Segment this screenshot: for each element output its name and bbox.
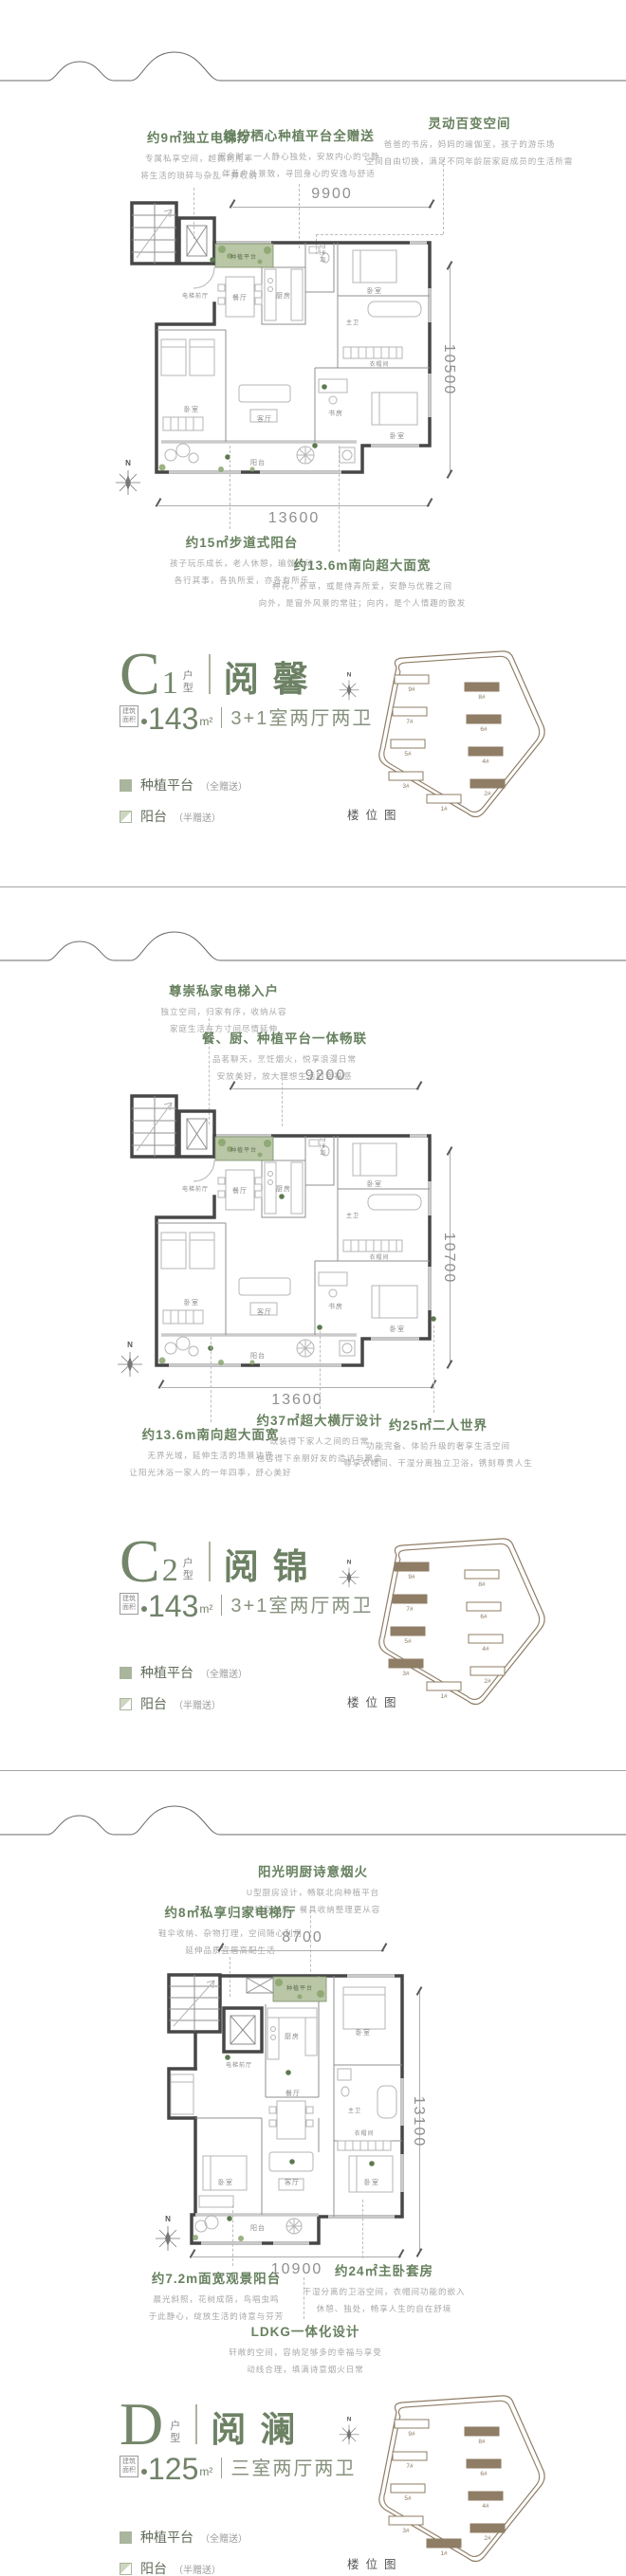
unit-title: C2 户型 阅锦 bbox=[120, 1540, 322, 1583]
compass-icon: N bbox=[114, 457, 142, 497]
callout-line: 晨光斜照，花树成荫，鸟唱虫鸣 bbox=[149, 2293, 285, 2305]
unit-name: 阅锦 bbox=[224, 1552, 322, 1583]
dimension-right: 10700 bbox=[444, 1151, 469, 1364]
unit-letter: D bbox=[120, 2402, 163, 2446]
callout-title: 阳光明厨诗意烟火 bbox=[246, 1861, 381, 1880]
svg-text:7#: 7# bbox=[406, 2463, 414, 2470]
svg-text:7#: 7# bbox=[406, 1606, 414, 1613]
svg-text:2#: 2# bbox=[484, 1678, 491, 1685]
callout-line: 休憩、独处，畅享人生的自在舒境 bbox=[303, 2303, 465, 2314]
svg-text:1#: 1# bbox=[440, 806, 448, 813]
room-label-balcony: 阳台 bbox=[250, 1351, 266, 1360]
unit-layout: 3+1室两厅两卫 bbox=[230, 1598, 373, 1616]
room-label-dining: 餐厅 bbox=[285, 2089, 301, 2097]
compass-icon: N bbox=[338, 2414, 360, 2446]
legend-row-planting: 种植平台 （全赠送） bbox=[120, 2530, 248, 2545]
callout-ldkg: LDKG一体化设计 轩敞的空间，容纳足够多的幸福与享受 动线合理，填满诗意烟火日… bbox=[229, 2321, 382, 2381]
room-label-closet: 衣帽间 bbox=[369, 360, 389, 368]
planting-swatch-icon bbox=[120, 779, 132, 792]
siteplan-map: 9# 7# 5# 3# 1# 8# 6# 4# 2# bbox=[368, 1538, 548, 1710]
svg-text:5#: 5# bbox=[404, 1638, 412, 1645]
room-label-bath: 卫生间 bbox=[319, 243, 326, 263]
dimension-top: 9200 bbox=[232, 1066, 419, 1090]
room-label-master-bath: 主卫 bbox=[346, 319, 359, 326]
room-label-bedroom: 卧室 bbox=[364, 2178, 379, 2186]
balcony-swatch-icon bbox=[120, 1698, 132, 1710]
area-value: 143 bbox=[148, 1595, 198, 1617]
callout-line: 独立空间，归家有序，收纳从容 bbox=[160, 1006, 286, 1017]
callout-title: 约15㎡步道式阳台 bbox=[170, 532, 314, 551]
unit-area: 建筑面积 125 m² 三室两厅两卫 bbox=[120, 2456, 356, 2480]
divider-bar bbox=[221, 707, 222, 728]
callout-line: 伴着户外景致，寻回身心的安逸与舒适 bbox=[217, 168, 379, 179]
room-label-master-bath: 主卫 bbox=[348, 2107, 361, 2114]
dimension-bottom: 13600 bbox=[158, 502, 430, 527]
svg-text:5#: 5# bbox=[404, 751, 412, 758]
svg-text:N: N bbox=[347, 2416, 352, 2422]
svg-text:2#: 2# bbox=[484, 791, 491, 797]
floorplan-c2: 电梯前厅 种植平台 餐厅 厨房 卫生间 卧室 主卫 衣帽间 卧室 客厅 书房 卧… bbox=[129, 1094, 434, 1371]
dimension-right: 10500 bbox=[444, 265, 469, 474]
unit-name: 阅馨 bbox=[224, 665, 322, 696]
area-box: 建筑面积 bbox=[120, 1593, 138, 1615]
floorplan-d: 种植平台 卧室 厨房 电梯前厅 餐厅 主卫 衣帽间 卧室 客厅 卧室 阳台 bbox=[167, 1974, 404, 2249]
callout-balcony: 约7.2m面宽观景阳台 晨光斜照，花树成荫，鸟唱虫鸣 于此静心，绽放生活的诗意与… bbox=[149, 2268, 285, 2328]
room-label-bedroom: 卧室 bbox=[390, 1325, 405, 1333]
siteplan-map: 9# 7# 5# 3# 1# 8# 6# 4# 2# bbox=[368, 2395, 548, 2567]
dimension-bottom: 13600 bbox=[161, 1384, 433, 1409]
legend: 种植平台 （全赠送） 阳台 （半赠送） bbox=[120, 1665, 248, 1727]
svg-text:8#: 8# bbox=[478, 694, 486, 701]
compass-icon: N bbox=[338, 1557, 360, 1589]
room-label-study: 书房 bbox=[328, 409, 343, 417]
dimension-value: 13600 bbox=[161, 1392, 433, 1409]
legend: 种植平台 （全赠送） 阳台 （半赠送） bbox=[120, 777, 248, 840]
wave-divider bbox=[0, 1803, 626, 1841]
callout-line: 向外，是窗外风景的常驻；向内，是个人情趣的散发 bbox=[259, 597, 467, 609]
svg-text:4#: 4# bbox=[482, 2503, 489, 2510]
legend-label: 种植平台 bbox=[140, 2528, 193, 2547]
leader-line bbox=[230, 446, 230, 529]
legend-note: （全赠送） bbox=[200, 1666, 248, 1680]
callout-title: 灵动百变空间 bbox=[366, 113, 574, 132]
room-label-elevator-hall: 电梯前厅 bbox=[182, 292, 209, 300]
dimension-value: 13600 bbox=[158, 510, 430, 527]
room-label-planting: 种植平台 bbox=[286, 1984, 313, 1992]
balcony-swatch-icon bbox=[120, 2563, 132, 2575]
divider-bar bbox=[195, 2404, 197, 2444]
svg-text:3#: 3# bbox=[402, 1671, 410, 1677]
callout-title: 约8㎡私享归家电梯厅 bbox=[158, 1902, 303, 1921]
callout-line: 功能完备、体验升级的奢享生活空间 bbox=[343, 1440, 533, 1452]
planting-swatch-icon bbox=[120, 2531, 132, 2544]
callout-master-suite: 约24㎡主卧套房 干湿分离的卫浴空间，衣帽间功能的嵌入 休憩、独处，畅享人生的自… bbox=[303, 2260, 465, 2320]
unit-title: D 户型 阅澜 bbox=[120, 2402, 309, 2446]
dimension-value: 8700 bbox=[221, 1929, 384, 1946]
callout-line: 闲余时，一人静心独处，安放内心的宁静 bbox=[217, 151, 379, 162]
callout-line: 种花、养草，或是侍弄所爱，安静与优雅之间 bbox=[259, 580, 467, 592]
legend-note: （半赠送） bbox=[174, 810, 221, 824]
divider-bar bbox=[221, 1595, 222, 1616]
svg-text:5#: 5# bbox=[404, 2495, 412, 2502]
area-box: 建筑面积 bbox=[120, 2456, 138, 2477]
unit-letter: C bbox=[120, 652, 160, 696]
svg-text:2#: 2# bbox=[484, 2535, 491, 2542]
svg-text:9#: 9# bbox=[408, 2431, 415, 2438]
callout-line: 品茗聊天，烹饪烟火，悦享浪漫日常 bbox=[202, 1053, 367, 1065]
leader-line bbox=[320, 1331, 321, 1409]
unit-type-label: 户型 bbox=[183, 670, 194, 697]
dimension-right: 13100 bbox=[414, 1991, 438, 2253]
svg-text:9#: 9# bbox=[408, 1574, 415, 1580]
siteplan-caption: 楼位图 bbox=[347, 1692, 403, 1710]
callout-title: 缤纷栖心种植平台全赠送 bbox=[217, 125, 379, 144]
siteplan-map: 9# 7# 5# 3# 1# 8# 6# 4# 2# bbox=[368, 650, 548, 823]
legend-row-balcony: 阳台 （半赠送） bbox=[120, 2561, 248, 2576]
leader-line bbox=[443, 159, 444, 234]
legend: 种植平台 （全赠送） 阳台 （半赠送） bbox=[120, 2530, 248, 2576]
svg-text:6#: 6# bbox=[480, 726, 488, 733]
callout-line: 干湿分离的卫浴空间，衣帽间功能的嵌入 bbox=[303, 2286, 465, 2297]
callout-title: 约7.2m面宽观景阳台 bbox=[149, 2268, 285, 2287]
dimension-value: 9200 bbox=[232, 1068, 419, 1085]
planting-swatch-icon bbox=[120, 1667, 132, 1679]
callout-title: 餐、厨、种植平台一体畅联 bbox=[202, 1028, 367, 1047]
compass-icon: N bbox=[154, 2213, 182, 2253]
room-label-master-bath: 主卫 bbox=[346, 1212, 359, 1219]
compass-icon: N bbox=[116, 1339, 144, 1379]
svg-text:6#: 6# bbox=[480, 1614, 488, 1620]
room-label-kitchen: 厨房 bbox=[276, 291, 291, 300]
callout-line: U型厨房设计，畅联北向种植平台 bbox=[246, 1887, 381, 1898]
divider-bar bbox=[209, 1542, 211, 1581]
room-label-bath: 卫生间 bbox=[319, 1136, 326, 1156]
svg-text:6#: 6# bbox=[480, 2471, 488, 2477]
callout-title: 尊崇私家电梯入户 bbox=[160, 980, 286, 999]
legend-row-planting: 种植平台 （全赠送） bbox=[120, 1665, 248, 1680]
area-value: 143 bbox=[148, 707, 198, 730]
callout-flex-space: 灵动百变空间 爸爸的书房，妈妈的瑜伽室，孩子的游乐场 空间自由切换，满足不同年龄… bbox=[366, 113, 574, 173]
balcony-swatch-icon bbox=[120, 811, 132, 823]
dot-icon bbox=[141, 1606, 147, 1612]
legend-note: （全赠送） bbox=[200, 778, 248, 793]
svg-text:3#: 3# bbox=[402, 2528, 410, 2534]
legend-row-balcony: 阳台 （半赠送） bbox=[120, 809, 248, 824]
svg-text:9#: 9# bbox=[408, 686, 415, 693]
svg-text:4#: 4# bbox=[482, 758, 489, 765]
room-label-bedroom: 卧室 bbox=[367, 286, 382, 295]
svg-text:8#: 8# bbox=[478, 2439, 486, 2445]
room-label-dining: 餐厅 bbox=[232, 1186, 248, 1195]
area-box: 建筑面积 bbox=[120, 705, 138, 727]
dimension-value: 10500 bbox=[440, 344, 457, 396]
dimension-value: 13100 bbox=[410, 2096, 427, 2148]
room-label-bedroom: 卧室 bbox=[367, 1179, 382, 1188]
unit-type-label: 户型 bbox=[183, 1558, 194, 1584]
section-c2: 尊崇私家电梯入户 独立空间，归家有序，收纳从容 家庭生活在方寸间尽情延伸 餐、厨… bbox=[0, 886, 626, 1770]
room-label-bedroom: 卧室 bbox=[218, 2178, 233, 2186]
divider-bar bbox=[221, 2457, 222, 2478]
legend-row-balcony: 阳台 （半赠送） bbox=[120, 1696, 248, 1711]
svg-text:8#: 8# bbox=[478, 1581, 486, 1588]
unit-type-label: 户型 bbox=[170, 2421, 181, 2447]
area-value: 125 bbox=[148, 2457, 198, 2480]
svg-text:N: N bbox=[125, 459, 131, 467]
leader-line bbox=[339, 446, 340, 552]
room-label-balcony: 阳台 bbox=[250, 458, 266, 466]
svg-text:1#: 1# bbox=[440, 2550, 448, 2557]
floorplan-c1: 电梯前厅 种植平台 餐厅 厨房 卫生间 卧室 主卫 衣帽间 卧室 客厅 书房 卧… bbox=[129, 201, 434, 478]
leader-line bbox=[433, 1325, 434, 1413]
room-label-bedroom: 卧室 bbox=[184, 1298, 199, 1306]
room-label-bedroom: 卧室 bbox=[390, 431, 405, 440]
leader-line bbox=[362, 2200, 363, 2258]
legend-note: （全赠送） bbox=[200, 2530, 248, 2545]
unit-number: 1 bbox=[162, 670, 178, 696]
dimension-value: 10700 bbox=[440, 1232, 457, 1284]
room-label-living: 客厅 bbox=[285, 2178, 300, 2186]
unit-number: 2 bbox=[162, 1558, 178, 1583]
leader-line bbox=[232, 2205, 233, 2266]
svg-text:7#: 7# bbox=[406, 719, 414, 725]
dot-icon bbox=[141, 719, 147, 724]
compass-icon: N bbox=[338, 669, 360, 702]
callout-line: 动线合理，填满诗意烟火日常 bbox=[229, 2364, 382, 2375]
callout-line: 尊享衣帽间、干湿分离独立卫浴，镌刻尊贵人生 bbox=[343, 1457, 533, 1469]
section-c1: 约9㎡独立电梯厅 专属私享空间，超高利用率 将生活的琐碎与杂乱一并收纳 缤纷栖心… bbox=[0, 0, 626, 886]
room-label-living: 客厅 bbox=[257, 1307, 272, 1316]
callout-title: 约13.6m南向超大面宽 bbox=[259, 555, 467, 574]
room-label-kitchen: 厨房 bbox=[285, 2032, 300, 2040]
legend-label: 种植平台 bbox=[140, 1663, 193, 1682]
callout-master-suite: 约25㎡二人世界 功能完备、体验升级的奢享生活空间 尊享衣帽间、干湿分离独立卫浴… bbox=[343, 1415, 533, 1474]
leader-line bbox=[211, 1337, 212, 1422]
room-label-planting: 种植平台 bbox=[230, 253, 257, 261]
callout-line: 轩敞的空间，容纳足够多的幸福与享受 bbox=[229, 2347, 382, 2358]
legend-label: 阳台 bbox=[140, 2559, 167, 2576]
unit-title: C1 户型 阅馨 bbox=[120, 652, 322, 696]
legend-label: 阳台 bbox=[140, 1694, 167, 1713]
room-label-bedroom: 卧室 bbox=[356, 2028, 371, 2037]
room-label-bedroom: 卧室 bbox=[184, 405, 199, 413]
dimension-top: 8700 bbox=[221, 1927, 384, 1952]
svg-text:N: N bbox=[165, 2215, 171, 2223]
room-label-planting: 种植平台 bbox=[230, 1146, 257, 1154]
svg-text:1#: 1# bbox=[440, 1693, 448, 1700]
callout-line: 爸爸的书房，妈妈的瑜伽室，孩子的游乐场 bbox=[366, 138, 574, 150]
svg-text:4#: 4# bbox=[482, 1646, 489, 1653]
room-label-study: 书房 bbox=[328, 1302, 343, 1310]
legend-note: （半赠送） bbox=[174, 1697, 221, 1711]
siteplan-caption: 楼位图 bbox=[347, 2554, 403, 2572]
brochure-page: 约9㎡独立电梯厅 专属私享空间，超高利用率 将生活的琐碎与杂乱一并收纳 缤纷栖心… bbox=[0, 0, 626, 2576]
divider-bar bbox=[209, 654, 211, 694]
area-unit: m² bbox=[199, 715, 212, 728]
svg-text:3#: 3# bbox=[402, 783, 410, 790]
area-unit: m² bbox=[199, 1602, 212, 1616]
room-label-dining: 餐厅 bbox=[232, 293, 248, 301]
callout-line: 空间自由切换，满足不同年龄层家庭成员的生活所需 bbox=[366, 155, 574, 167]
siteplan-caption: 楼位图 bbox=[347, 805, 403, 823]
area-unit: m² bbox=[199, 2465, 212, 2478]
legend-row-planting: 种植平台 （全赠送） bbox=[120, 777, 248, 793]
room-label-elevator-hall: 电梯前厅 bbox=[226, 2061, 252, 2069]
unit-letter: C bbox=[120, 1540, 160, 1583]
room-label-balcony: 阳台 bbox=[250, 2223, 266, 2232]
section-d: 阳光明厨诗意烟火 U型厨房设计，畅联北向种植平台 双排型布局，餐具收纳整理更从容… bbox=[0, 1770, 626, 2576]
callout-title: LDKG一体化设计 bbox=[229, 2321, 382, 2340]
svg-text:N: N bbox=[347, 1559, 352, 1565]
unit-layout: 3+1室两厅两卫 bbox=[230, 710, 373, 728]
room-label-closet: 衣帽间 bbox=[354, 2129, 374, 2137]
legend-note: （半赠送） bbox=[174, 2562, 221, 2576]
callout-south-width: 约13.6m南向超大面宽 种花、养草，或是侍弄所爱，安静与优雅之间 向外，是窗外… bbox=[259, 555, 467, 614]
callout-planting-platform: 缤纷栖心种植平台全赠送 闲余时，一人静心独处，安放内心的宁静 伴着户外景致，寻回… bbox=[217, 125, 379, 185]
wave-divider bbox=[0, 49, 626, 87]
svg-text:N: N bbox=[127, 1341, 133, 1349]
legend-label: 种植平台 bbox=[140, 776, 193, 795]
unit-area: 建筑面积 143 m² 3+1室两厅两卫 bbox=[120, 1593, 373, 1617]
svg-text:N: N bbox=[347, 671, 352, 678]
dot-icon bbox=[141, 2469, 147, 2475]
callout-title: 约24㎡主卧套房 bbox=[303, 2260, 465, 2279]
legend-label: 阳台 bbox=[140, 807, 167, 826]
room-label-closet: 衣帽间 bbox=[369, 1253, 389, 1261]
unit-layout: 三室两厅两卫 bbox=[230, 2460, 356, 2478]
wave-divider bbox=[0, 929, 626, 967]
unit-area: 建筑面积 143 m² 3+1室两厅两卫 bbox=[120, 705, 373, 730]
callout-title: 约25㎡二人世界 bbox=[343, 1415, 533, 1434]
room-label-kitchen: 厨房 bbox=[276, 1184, 291, 1193]
unit-name: 阅澜 bbox=[211, 2415, 309, 2446]
room-label-elevator-hall: 电梯前厅 bbox=[182, 1185, 209, 1193]
room-label-living: 客厅 bbox=[257, 414, 272, 423]
